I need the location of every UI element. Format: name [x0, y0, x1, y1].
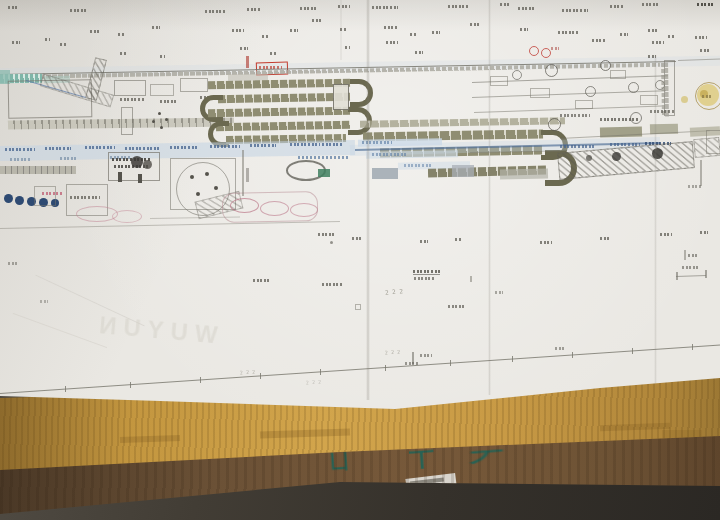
feature-dot — [15, 196, 24, 205]
feature-ell — [112, 210, 142, 223]
feature-dot — [612, 152, 621, 161]
feature-rect — [34, 186, 56, 206]
feature-rect — [246, 56, 249, 68]
feature-rect — [65, 386, 66, 392]
feature-smudge — [455, 238, 461, 241]
feature-smudge — [500, 3, 510, 6]
feature-dot — [143, 160, 152, 169]
wood-grain-mark — [260, 428, 350, 438]
feature-dot — [190, 175, 194, 179]
wood-grain-mark — [600, 423, 670, 431]
feature-smudge — [45, 38, 50, 41]
feature-smudge — [410, 33, 416, 36]
feature-txt: 2 2 2 — [385, 288, 403, 295]
feature-smudge — [5, 148, 35, 151]
feature-smudge — [290, 143, 320, 146]
feature-dot — [4, 194, 13, 203]
feature-smudge — [610, 5, 624, 8]
feature-smudge — [8, 6, 18, 9]
feature-rect — [114, 80, 146, 96]
feature-crease — [340, 0, 342, 60]
feature-dot — [681, 96, 688, 103]
feature-smudge — [210, 145, 240, 148]
feature-smudge — [322, 283, 342, 286]
feature-smudge — [540, 241, 552, 244]
feature-smudge — [262, 35, 268, 38]
feature-line — [676, 275, 706, 277]
feature-smudge — [42, 192, 64, 195]
feature-smudge — [648, 29, 658, 32]
painted-character-1: 凵 — [329, 448, 350, 475]
feature-smudge — [448, 305, 466, 308]
feature-smudge — [562, 9, 588, 12]
feature-smudge — [470, 23, 480, 26]
feature-dot — [152, 120, 155, 123]
feature-smudge — [404, 164, 432, 167]
feature-ring — [541, 48, 551, 58]
feature-smudge — [495, 291, 503, 294]
feature-rect — [138, 174, 142, 183]
feature-smudge — [405, 362, 419, 365]
feature-rect — [333, 84, 349, 110]
feature-smudge — [660, 233, 672, 236]
feature-smudge — [600, 237, 610, 240]
feature-rect — [450, 360, 451, 366]
feature-dot — [131, 156, 143, 168]
green-unit — [318, 169, 330, 177]
feature-crease — [488, 0, 491, 395]
feature-rect — [372, 168, 398, 179]
feature-smudge — [352, 237, 362, 240]
feature-crease — [654, 55, 657, 385]
feature-smudge — [90, 30, 100, 33]
feature-rect — [222, 191, 319, 223]
feature-smudge — [120, 52, 127, 55]
feature-rect — [500, 169, 548, 180]
feature-smudge — [702, 95, 712, 98]
feature-txt: 2 2 2 — [306, 379, 321, 385]
feature-smudge — [125, 147, 159, 150]
feature-rect — [530, 88, 550, 98]
feature-smudge — [70, 196, 100, 199]
feature-smudge — [518, 7, 534, 10]
feature-rect — [512, 356, 513, 362]
feature-smudge — [600, 118, 640, 121]
feature-smudge — [642, 3, 660, 6]
feature-smudge — [205, 10, 227, 13]
feature-ring — [628, 82, 639, 93]
feature-rect — [700, 160, 702, 186]
feature-smudge — [420, 354, 432, 357]
feature-txt: 2 2 2 — [240, 369, 255, 375]
feature-dot — [214, 186, 218, 190]
feature-rect — [246, 168, 249, 182]
feature-dot — [330, 241, 333, 244]
feature-smudge — [160, 100, 178, 103]
feature-ring — [529, 46, 539, 56]
feature-rect — [572, 352, 573, 358]
feature-seg — [298, 156, 350, 159]
feature-smudge — [270, 52, 276, 55]
feature-rect — [320, 369, 321, 375]
feature-crease — [366, 0, 370, 400]
feature-smudge — [592, 39, 606, 42]
feature-smudge — [232, 29, 244, 32]
feature-rect — [692, 344, 693, 350]
painted-character-3: 丆 — [469, 445, 505, 471]
feature-dot — [196, 192, 200, 196]
feature-smudge — [551, 47, 559, 50]
painted-character-2: 丅 — [409, 445, 436, 474]
feature-smudge — [253, 279, 269, 282]
photo-frame: 凵 丅 丆 2 2 22 2 22 2 22 2 2 WUYUN — [0, 0, 720, 520]
feature-smudge — [448, 5, 468, 8]
feature-smudge — [520, 28, 528, 31]
feature-seg — [218, 93, 350, 103]
feature-smudge — [688, 185, 702, 188]
feature-rect — [121, 107, 133, 135]
feature-smudge — [415, 51, 423, 54]
feature-smudge — [384, 26, 398, 29]
feature-seg — [216, 121, 350, 131]
feature-smudge — [668, 35, 674, 38]
feature-seg — [0, 166, 76, 174]
feature-seg — [360, 117, 565, 128]
feature-smudge — [372, 153, 408, 156]
feature-rect — [452, 165, 474, 177]
feature-smudge — [420, 240, 428, 243]
feature-rect — [180, 78, 208, 92]
wood-grain-mark — [120, 435, 180, 443]
feature-seg — [208, 107, 350, 117]
feature-smudge — [413, 270, 440, 273]
feature-smudge — [322, 143, 344, 146]
feature-dot — [160, 126, 163, 129]
feature-line — [0, 221, 340, 229]
bottom-dimension-line — [0, 345, 720, 395]
feature-smudge — [700, 231, 708, 234]
feature-smudge — [120, 98, 144, 101]
feature-seg — [208, 79, 350, 89]
feature-dot — [165, 118, 168, 121]
feature-smudge — [170, 146, 198, 149]
feature-smudge — [697, 3, 715, 6]
feature-smudge — [432, 31, 440, 34]
feature-rect — [706, 130, 720, 154]
feature-smudge — [312, 19, 322, 22]
feature-rect — [385, 365, 386, 371]
feature-smudge — [386, 41, 398, 44]
feature-dot — [586, 155, 592, 161]
feature-rect — [676, 272, 678, 280]
feature-smudge — [10, 158, 32, 161]
feature-ring — [545, 64, 558, 77]
feature-smudge — [372, 6, 398, 9]
feature-smudge — [12, 41, 20, 44]
feature-line — [413, 274, 440, 275]
feature-smudge — [60, 43, 66, 46]
feature-dot — [205, 172, 209, 176]
feature-seg — [661, 62, 669, 116]
feature-smudge — [160, 55, 165, 58]
feature-smudge — [555, 347, 565, 350]
feature-rect — [490, 76, 508, 86]
feature-smudge — [414, 277, 434, 280]
feature-rect — [355, 304, 361, 310]
feature-rect — [610, 70, 626, 79]
feature-smudge — [70, 9, 88, 12]
feature-smudge — [300, 7, 316, 10]
feature-smudge — [345, 46, 350, 49]
feature-rect — [242, 150, 244, 196]
feature-rect — [130, 382, 131, 388]
feature-txt: 2 2 2 — [385, 349, 400, 355]
feature-smudge — [118, 33, 124, 36]
feature-rect — [684, 250, 686, 260]
feature-smudge — [560, 145, 596, 148]
feature-smudge — [620, 33, 628, 36]
feature-rect — [705, 270, 707, 278]
feature-rect — [200, 377, 201, 383]
feature-smudge — [8, 262, 18, 265]
feature-smudge — [40, 300, 48, 303]
feature-smudge — [318, 233, 334, 236]
feature-smudge — [45, 147, 71, 150]
feature-ring — [512, 70, 522, 80]
feature-rect — [632, 348, 633, 354]
feature-ring — [548, 118, 561, 131]
feature-smudge — [560, 114, 590, 117]
feature-smudge — [700, 49, 710, 52]
feature-rect — [118, 172, 122, 182]
feature-smudge — [558, 31, 580, 34]
feature-smudge — [85, 146, 115, 149]
feature-smudge — [688, 254, 698, 257]
feature-smudge — [652, 41, 664, 44]
feature-rect — [470, 276, 472, 282]
feature-smudge — [250, 144, 276, 147]
feature-smudge — [682, 266, 698, 269]
feature-smudge — [290, 29, 298, 32]
feature-rect — [150, 84, 174, 96]
feature-dot — [158, 112, 161, 115]
feature-ring — [585, 86, 596, 97]
feature-rect — [575, 100, 593, 109]
feature-smudge — [247, 8, 261, 11]
feature-rect — [260, 373, 261, 379]
feature-smudge — [695, 36, 707, 39]
feature-smudge — [152, 26, 160, 29]
feature-smudge — [60, 157, 78, 160]
feature-smudge — [240, 47, 248, 50]
